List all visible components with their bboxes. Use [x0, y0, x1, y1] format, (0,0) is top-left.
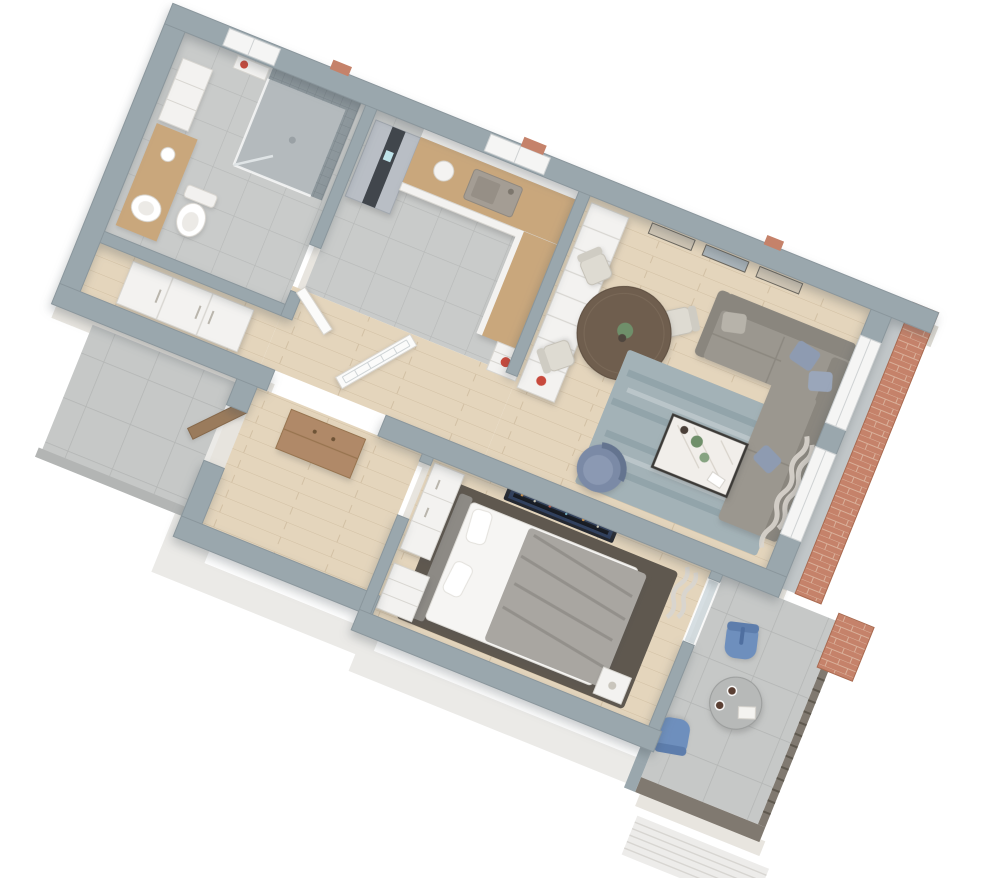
floorplan-svg — [0, 0, 1000, 878]
pillow-beige — [721, 311, 748, 334]
pillow-blue-2 — [808, 371, 833, 393]
balcony-chair-1 — [723, 621, 759, 661]
balcony-book — [738, 707, 755, 720]
floorplan-stage — [0, 0, 1000, 878]
